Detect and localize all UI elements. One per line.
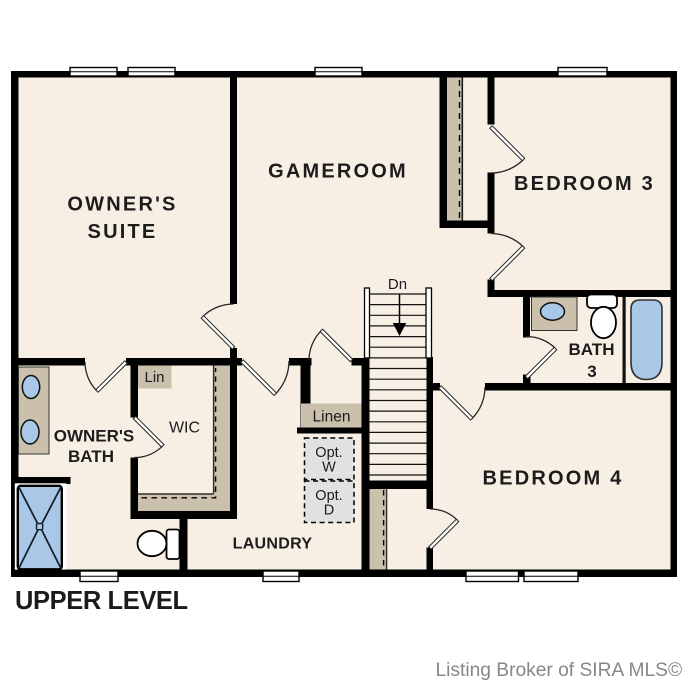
svg-text:UPPER LEVEL: UPPER LEVEL xyxy=(15,587,188,615)
svg-text:BEDROOM 4: BEDROOM 4 xyxy=(483,468,624,490)
svg-text:Linen: Linen xyxy=(313,409,351,426)
svg-text:Dn: Dn xyxy=(388,276,407,293)
svg-text:GAMEROOM: GAMEROOM xyxy=(268,161,408,183)
svg-text:LAUNDRY: LAUNDRY xyxy=(233,536,313,553)
svg-text:Lin: Lin xyxy=(144,369,164,386)
svg-text:3: 3 xyxy=(587,362,596,381)
svg-text:OWNER'S: OWNER'S xyxy=(67,194,177,216)
svg-text:WIC: WIC xyxy=(169,420,200,437)
svg-text:BEDROOM 3: BEDROOM 3 xyxy=(514,173,655,195)
svg-text:W: W xyxy=(322,460,336,476)
svg-text:Listing Broker of SIRA MLS©: Listing Broker of SIRA MLS© xyxy=(436,660,683,681)
svg-text:D: D xyxy=(324,503,334,519)
svg-text:BATH: BATH xyxy=(569,340,615,359)
svg-text:BATH: BATH xyxy=(68,447,114,466)
svg-text:OWNER'S: OWNER'S xyxy=(54,427,135,446)
svg-text:SUITE: SUITE xyxy=(88,221,158,243)
